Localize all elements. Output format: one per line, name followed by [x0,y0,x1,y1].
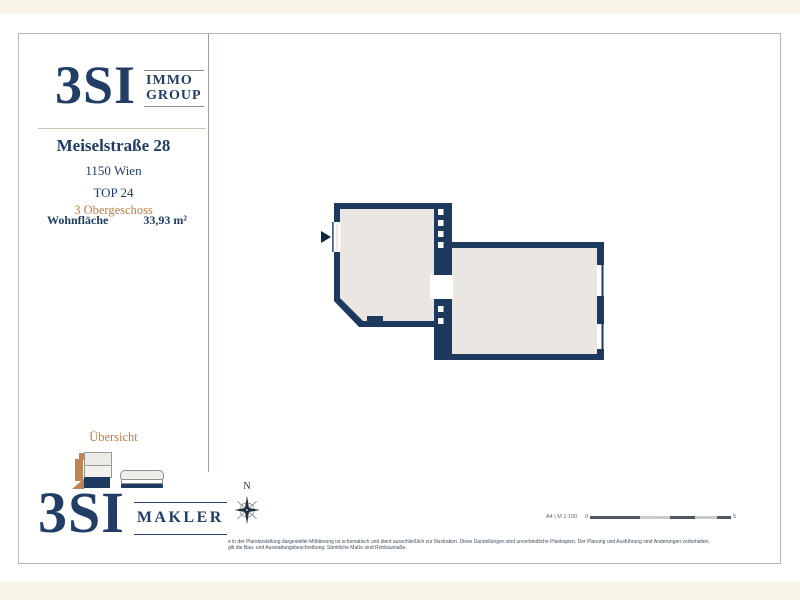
wall-notch [367,316,383,321]
scale-caption: A4 | M 1:100 [546,514,577,520]
scale-segment [717,516,731,519]
room-left-floor [340,209,434,321]
scale-bar-strip [590,516,731,519]
compass-rose-icon [232,494,262,526]
scale-segment [590,516,640,519]
letterbox-top [0,0,800,14]
north-label: N [231,481,263,492]
interior-door-opening [430,275,453,299]
scale-bar: A4 | M 1:100 0 5 [546,514,736,520]
entrance-door [332,222,340,252]
scale-max: 5 [733,514,736,520]
plan-sheet: 3SI IMMO GROUP Meiselstraße 28 1150 Wien… [18,33,781,564]
room-right-floor [452,248,597,354]
scale-min: 0 [585,514,588,520]
compass: N [231,481,263,526]
disclaimer: e in der Plandarstellung dargestellte Mö… [228,539,778,551]
scale-segment [695,516,717,519]
letterbox-bottom [0,582,800,600]
disclaimer-line2: gilt die Bau- und Ausstattungsbeschreibu… [228,545,778,551]
entrance-arrow-icon [321,231,331,243]
floor-plan [19,34,782,565]
window-2 [597,324,605,349]
scale-segment [670,516,695,519]
window-1 [597,265,605,296]
scale-segment [640,516,670,519]
